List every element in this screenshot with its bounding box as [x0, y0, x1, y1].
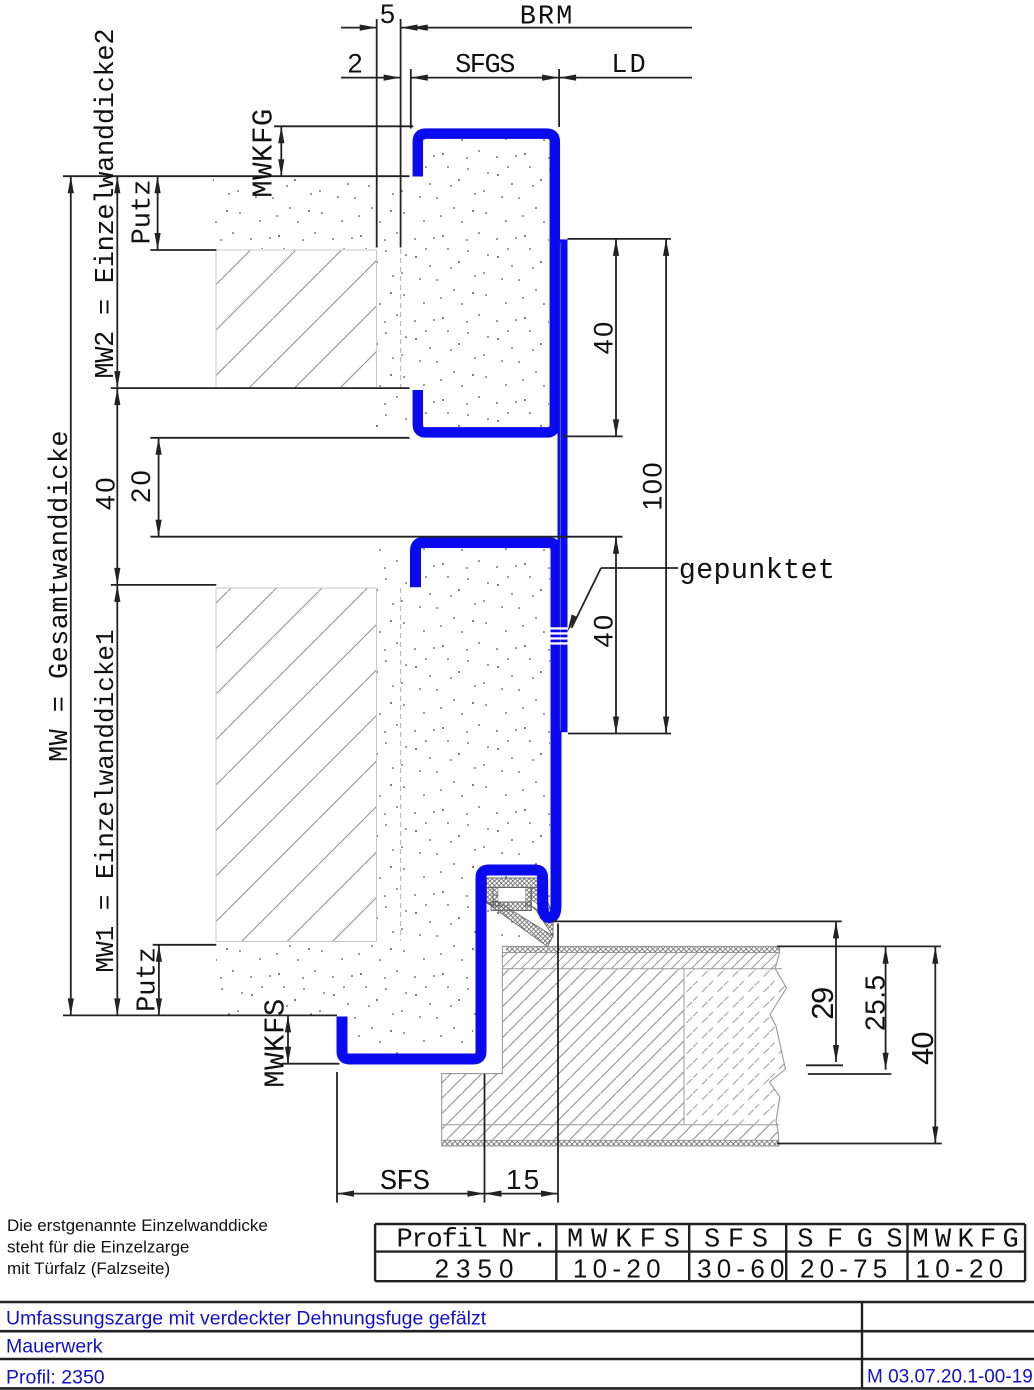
svg-text:2350: 2350	[435, 1254, 521, 1284]
svg-text:20-75: 20-75	[800, 1254, 893, 1284]
svg-text:10-20: 10-20	[916, 1254, 1009, 1284]
svg-text:gepunktet: gepunktet	[679, 554, 836, 587]
svg-text:LD: LD	[611, 51, 647, 81]
svg-text:SFS: SFS	[380, 1165, 429, 1198]
svg-text:Die erstgenannte Einzelwanddic: Die erstgenannte Einzelwanddicke	[7, 1216, 268, 1235]
svg-text:mit Türfalz (Falzseite): mit Türfalz (Falzseite)	[7, 1259, 170, 1278]
svg-text:Putz: Putz	[134, 947, 164, 1012]
svg-text:Profil: 2350: Profil: 2350	[6, 1367, 105, 1389]
svg-text:SFGS: SFGS	[797, 1226, 916, 1256]
svg-text:25.5: 25.5	[860, 974, 891, 1030]
svg-text:MWKFG: MWKFG	[912, 1226, 1025, 1256]
svg-text:40: 40	[589, 319, 619, 354]
svg-text:SFGS: SFGS	[455, 51, 514, 81]
svg-text:15: 15	[506, 1164, 541, 1195]
svg-text:MW1 = Einzelwanddicke1: MW1 = Einzelwanddicke1	[91, 629, 121, 972]
svg-text:MWKFS: MWKFS	[260, 998, 293, 1088]
svg-text:20: 20	[126, 468, 156, 503]
svg-text:10-20: 10-20	[573, 1254, 666, 1284]
svg-text:5: 5	[380, 0, 397, 29]
svg-text:Putz: Putz	[129, 180, 159, 245]
svg-text:SFS: SFS	[704, 1226, 776, 1256]
svg-text:29: 29	[805, 988, 840, 1020]
svg-text:40: 40	[589, 612, 619, 647]
svg-text:MW = Gesamtwanddicke: MW = Gesamtwanddicke	[46, 430, 76, 762]
svg-text:steht für die Einzelzarge: steht für die Einzelzarge	[7, 1237, 189, 1256]
svg-text:Mauerwerk: Mauerwerk	[6, 1335, 103, 1357]
svg-text:40: 40	[905, 1032, 940, 1065]
svg-text:2: 2	[347, 49, 364, 79]
svg-text:MW2 = Einzelwanddicke2: MW2 = Einzelwanddicke2	[92, 29, 122, 379]
svg-text:100: 100	[638, 461, 668, 511]
svg-text:MWKFS: MWKFS	[567, 1226, 688, 1256]
svg-text:40: 40	[91, 475, 121, 510]
svg-text:BRM: BRM	[520, 3, 575, 33]
svg-text:Umfassungszarge mit verdeckter: Umfassungszarge mit verdeckter Dehnungsf…	[6, 1307, 487, 1329]
svg-text:MWKFG: MWKFG	[248, 108, 281, 198]
svg-text:30-60: 30-60	[697, 1254, 790, 1284]
svg-text:Profil Nr.: Profil Nr.	[396, 1226, 546, 1256]
svg-text:M 03.07.20.1-00-19: M 03.07.20.1-00-19	[867, 1367, 1033, 1388]
